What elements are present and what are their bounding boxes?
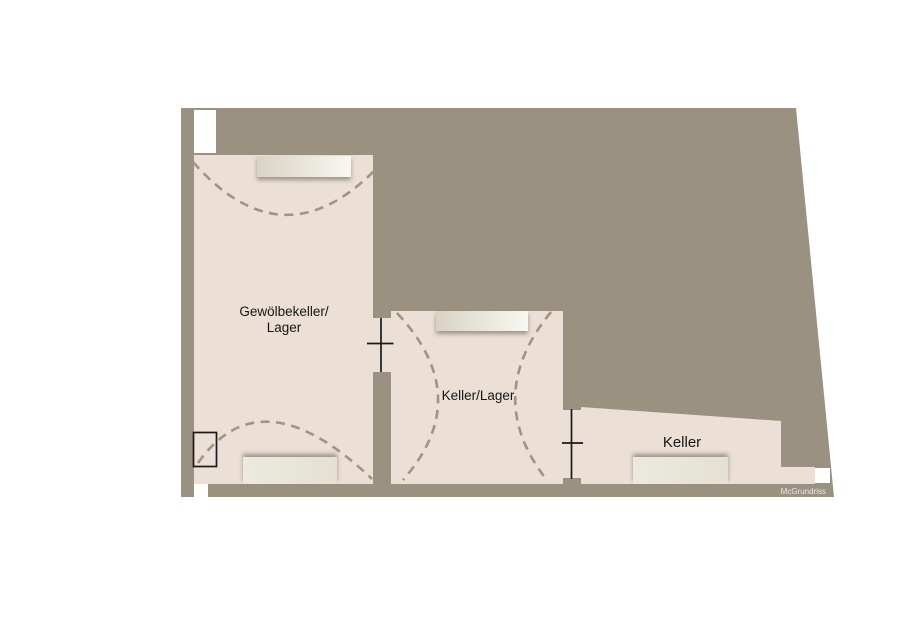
room-label-keller: Keller bbox=[663, 434, 701, 451]
room-label-gewoelbekeller-line1: Gewölbekeller/ bbox=[239, 304, 329, 319]
niche-keller-lager-top bbox=[436, 311, 528, 331]
room-label-keller-lager: Keller/Lager bbox=[442, 388, 515, 403]
door-gap-gewoelbekeller-kellerlager bbox=[373, 318, 391, 372]
wall-opening-bottom-left bbox=[194, 484, 208, 497]
floorplan-canvas: Gewölbekeller/ Lager Keller/Lager Keller… bbox=[0, 0, 900, 636]
watermark: McGrundriss bbox=[781, 487, 826, 496]
room-label-gewoelbekeller-line2: Lager bbox=[267, 320, 302, 335]
niche-keller-bottom bbox=[633, 457, 728, 484]
wall-opening-bottom-right bbox=[815, 468, 830, 483]
niche-gewoelbekeller-top bbox=[257, 156, 351, 177]
niche-gewoelbekeller-bottom bbox=[243, 457, 337, 484]
wall-opening-top-left bbox=[194, 110, 216, 153]
floorplan-page: Gewölbekeller/ Lager Keller/Lager Keller… bbox=[0, 0, 900, 636]
